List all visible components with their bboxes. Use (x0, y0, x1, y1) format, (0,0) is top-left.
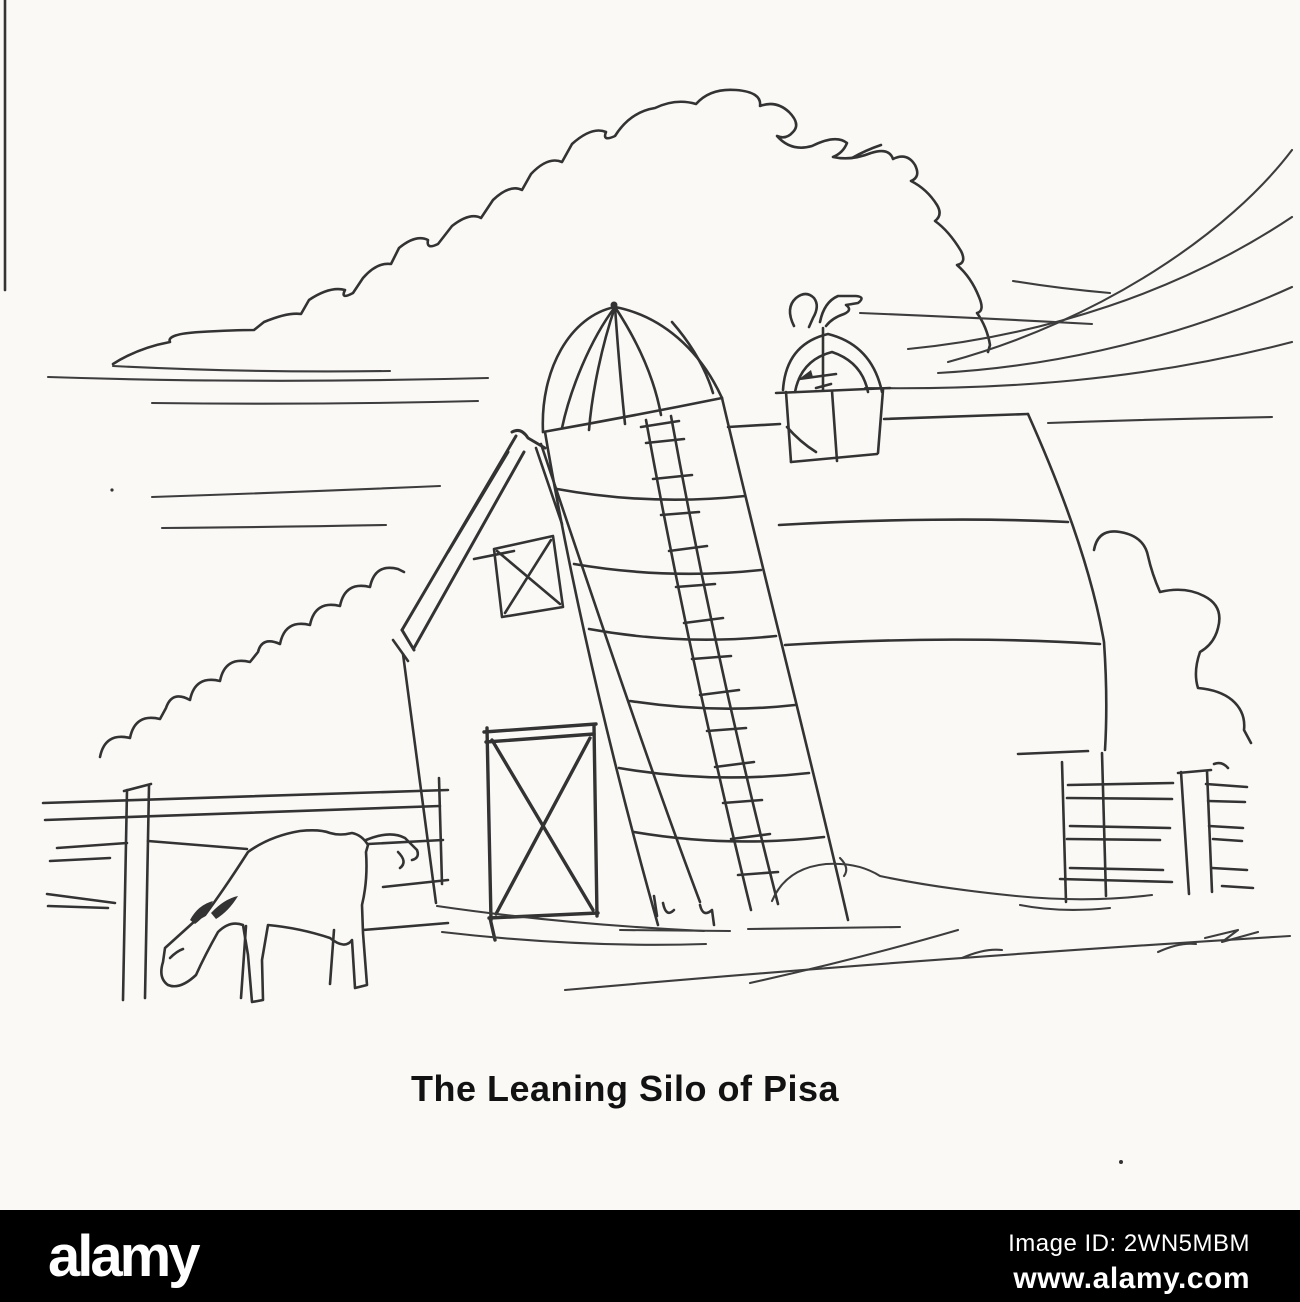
image-id-text: Image ID: 2WN5MBM (1008, 1230, 1250, 1258)
cumulus-cloud (113, 90, 990, 364)
fence-post-cap (124, 784, 151, 791)
paper-specks (110, 488, 1123, 1164)
roof-right-edge (1028, 414, 1106, 750)
fence-post (1062, 762, 1066, 902)
fence-rail (43, 790, 448, 803)
fence-rail (1067, 798, 1245, 802)
barn (393, 430, 700, 940)
fence-rail (1070, 868, 1247, 870)
cow-tail (366, 834, 418, 860)
dome-rib (615, 307, 625, 424)
dome-rim (543, 398, 722, 432)
alamy-url-text: www.alamy.com (1008, 1262, 1250, 1296)
fence-post (123, 790, 127, 1000)
silo-dome (543, 307, 722, 432)
sky-lines (48, 366, 1272, 528)
cartoon-caption: The Leaning Silo of Pisa (411, 1068, 839, 1110)
silo-band (589, 629, 776, 640)
fence-rail (45, 806, 440, 820)
cupola (776, 334, 890, 462)
ridge-right-segment (884, 414, 1028, 419)
silo-band (574, 564, 761, 574)
silo-band (634, 832, 824, 841)
silo-band (630, 701, 795, 709)
stock-image-page: The Leaning Silo of Pisa alamy Image ID:… (0, 0, 1300, 1302)
barn-door (484, 724, 598, 940)
watermark-info: Image ID: 2WN5MBM www.alamy.com (1008, 1230, 1250, 1296)
ridge-left-segment (728, 424, 780, 427)
cow-tail-tuft (398, 852, 404, 868)
dome-rib (672, 322, 713, 393)
wind-swooshes (860, 150, 1292, 388)
roof-board-line (779, 520, 1068, 525)
fence-rail (1070, 826, 1243, 828)
silo-base-marks (654, 896, 714, 925)
left-tree (100, 568, 404, 757)
fence-post (145, 786, 149, 998)
cartoon-illustration (0, 0, 1300, 1210)
eave-foot (393, 640, 408, 661)
leaning-silo (543, 302, 848, 926)
right-wall-edge (1102, 753, 1106, 896)
fence-rail (1067, 839, 1242, 841)
rooster-tail (790, 294, 817, 327)
fence-rail (1068, 783, 1247, 787)
alamy-logo: alamy (48, 1228, 197, 1286)
right-fence (1060, 762, 1253, 902)
left-wall-edge (403, 654, 436, 903)
cow (161, 830, 417, 1002)
rooster-head (820, 296, 862, 326)
fence-rail (1060, 879, 1253, 888)
ground-strokes (437, 858, 1290, 990)
hayloft-window (474, 536, 563, 617)
eave-line (1018, 751, 1088, 754)
fence-rail (48, 906, 108, 908)
fence-post (1181, 772, 1189, 894)
silo-band (557, 489, 745, 500)
silo-band (619, 768, 809, 777)
dome-finial (611, 302, 618, 309)
ladder-rail (671, 416, 778, 904)
roof-board-line (785, 640, 1100, 645)
fence-post (1207, 771, 1212, 892)
cow-front-leg (241, 926, 246, 998)
right-tree (1094, 531, 1251, 743)
left-roof-band (402, 430, 545, 650)
dome-rib (562, 307, 615, 428)
wall-line (439, 778, 442, 884)
fence-rail-dashed (57, 840, 443, 849)
watermark-bar: alamy Image ID: 2WN5MBM www.alamy.com (0, 1210, 1300, 1302)
